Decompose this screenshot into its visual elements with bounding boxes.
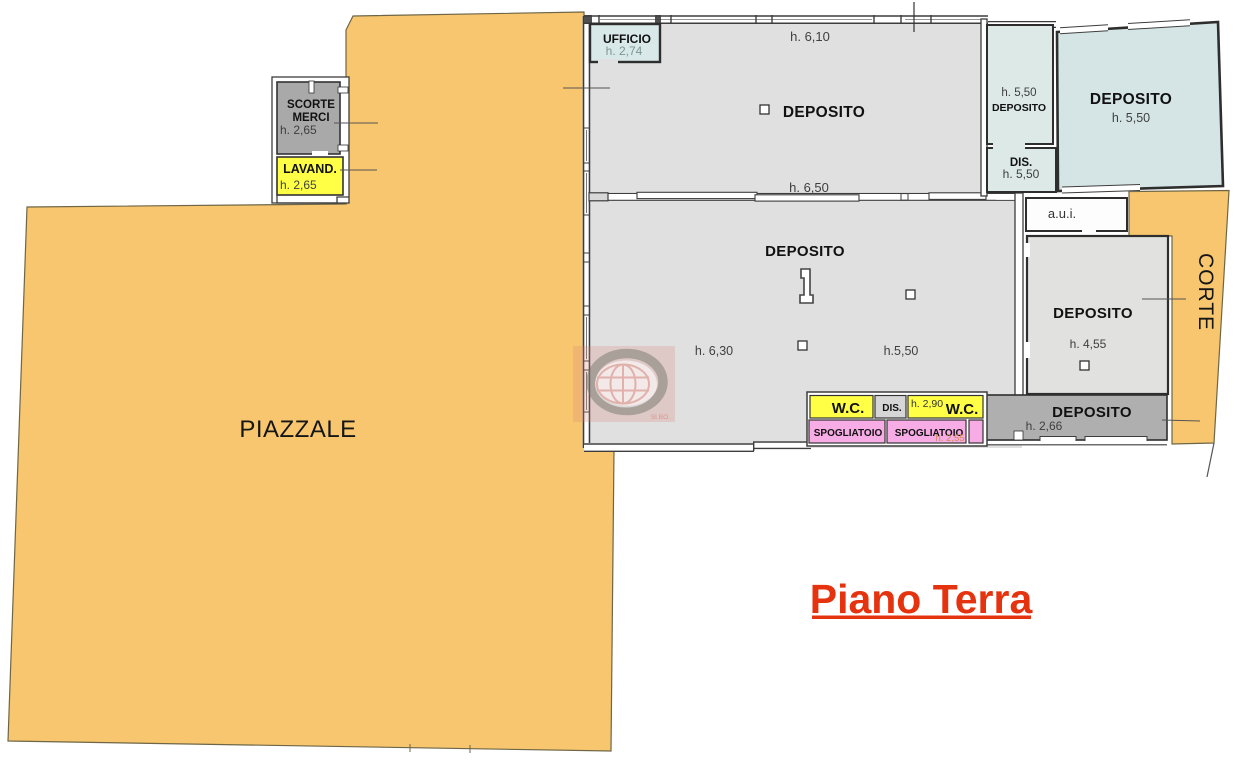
svg-text:a.u.i.: a.u.i. — [1048, 206, 1076, 221]
svg-text:h. 2,65: h. 2,65 — [280, 123, 317, 137]
svg-text:DEPOSITO: DEPOSITO — [992, 102, 1046, 114]
svg-text:Piano Terra: Piano Terra — [810, 576, 1034, 622]
svg-text:h. 4,55: h. 4,55 — [1070, 337, 1107, 351]
svg-text:h. 5,50: h. 5,50 — [1112, 111, 1150, 125]
svg-text:h. 2,90: h. 2,90 — [911, 398, 943, 410]
svg-text:h. 2,65: h. 2,65 — [280, 178, 317, 192]
svg-text:DEPOSITO: DEPOSITO — [1053, 305, 1133, 322]
svg-text:DEPOSITO: DEPOSITO — [1052, 404, 1132, 421]
svg-text:h. 2,74: h. 2,74 — [606, 44, 643, 58]
svg-text:W.C.: W.C. — [946, 401, 979, 418]
svg-text:DEPOSITO: DEPOSITO — [765, 243, 845, 260]
svg-text:h. 6,30: h. 6,30 — [695, 344, 733, 358]
svg-text:DIS.: DIS. — [882, 403, 902, 414]
svg-text:SI.BO.: SI.BO. — [651, 414, 670, 421]
svg-text:SCORTE: SCORTE — [287, 99, 335, 111]
svg-text:h. 2,55: h. 2,55 — [935, 433, 964, 444]
svg-text:h. 5,50: h. 5,50 — [1001, 87, 1036, 99]
svg-text:h. 6,10: h. 6,10 — [790, 29, 830, 44]
svg-text:h. 2,66: h. 2,66 — [1026, 419, 1063, 433]
svg-text:PIAZZALE: PIAZZALE — [239, 416, 356, 443]
svg-text:h. 5,50: h. 5,50 — [1003, 167, 1040, 181]
svg-text:SPOGLIATOIO: SPOGLIATOIO — [814, 428, 883, 439]
svg-text:h.5,50: h.5,50 — [884, 344, 919, 358]
svg-text:DEPOSITO: DEPOSITO — [1090, 91, 1172, 108]
svg-text:LAVAND.: LAVAND. — [283, 162, 337, 176]
svg-text:DEPOSITO: DEPOSITO — [783, 104, 865, 121]
svg-text:W.C.: W.C. — [832, 400, 865, 417]
svg-text:h. 6,50: h. 6,50 — [789, 180, 829, 195]
svg-text:CORTE: CORTE — [1194, 253, 1217, 331]
